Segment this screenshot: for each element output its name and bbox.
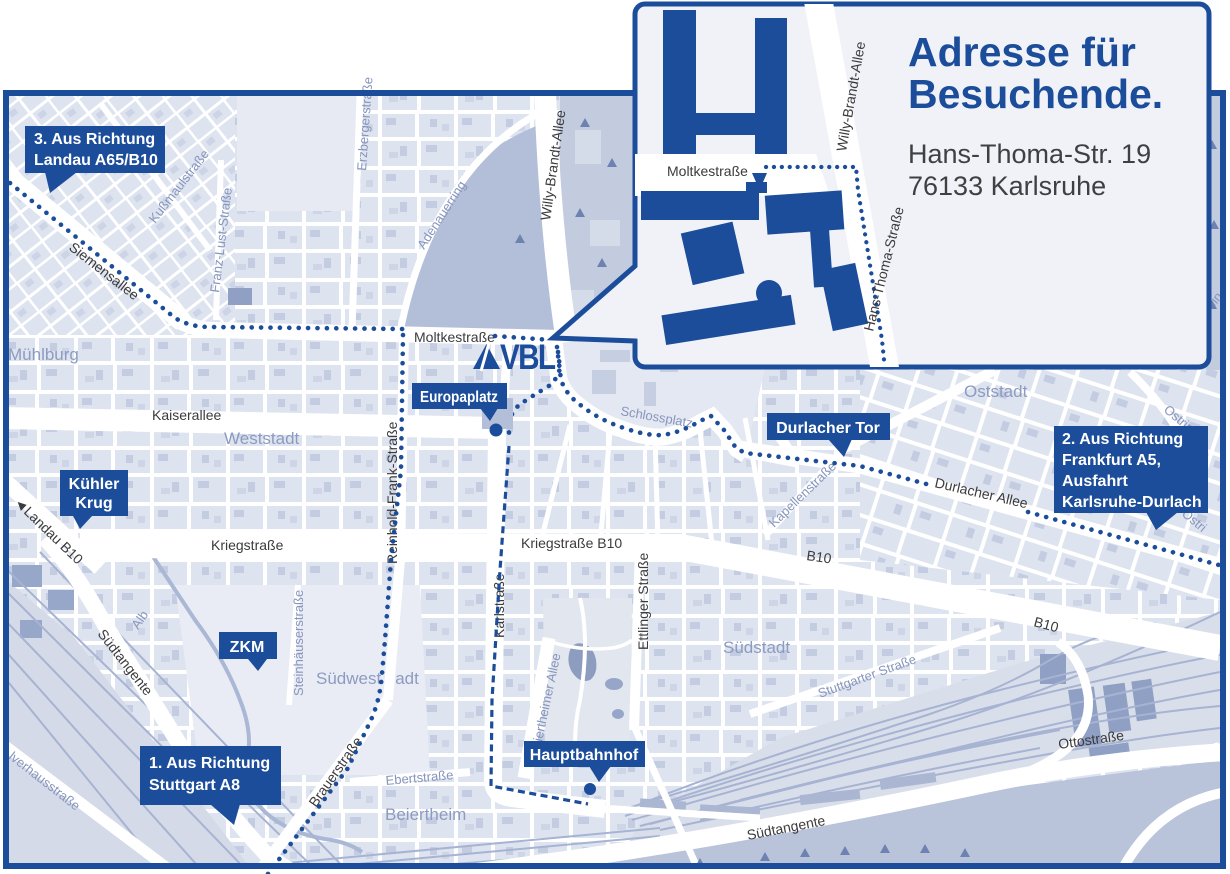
svg-text:Kriegstraße: Kriegstraße [211,537,284,553]
svg-text:Mühlburg: Mühlburg [8,345,79,364]
svg-text:76133 Karlsruhe: 76133 Karlsruhe [908,171,1106,201]
svg-text:Ettlinger Straße: Ettlinger Straße [635,553,651,650]
svg-text:1. Aus Richtung: 1. Aus Richtung [149,755,270,772]
svg-text:Oststadt: Oststadt [964,382,1028,401]
svg-text:3. Aus Richtung: 3. Aus Richtung [34,131,155,148]
svg-text:VBL: VBL [500,338,555,377]
svg-text:Europaplatz: Europaplatz [420,389,498,406]
svg-text:Kriegstraße B10: Kriegstraße B10 [521,535,622,551]
svg-text:Südstadt: Südstadt [723,638,790,657]
svg-text:Karlsruhe-Durlach: Karlsruhe-Durlach [1062,494,1202,511]
svg-text:2. Aus Richtung: 2. Aus Richtung [1062,431,1183,448]
svg-text:Kaiserallee: Kaiserallee [152,407,221,423]
svg-text:Durlacher Tor: Durlacher Tor [776,420,880,437]
svg-text:Moltkestraße: Moltkestraße [414,329,495,345]
svg-text:Stuttgart A8: Stuttgart A8 [149,777,240,794]
svg-text:Beiertheim: Beiertheim [385,805,466,824]
svg-text:Ausfahrt: Ausfahrt [1062,473,1128,490]
svg-text:Karlstraße: Karlstraße [491,573,507,638]
svg-text:Weststadt: Weststadt [224,429,300,448]
svg-text:Landau A65/B10: Landau A65/B10 [34,152,158,169]
svg-text:Kühler: Kühler [69,476,120,493]
svg-text:Frankfurt A5,: Frankfurt A5, [1062,452,1161,469]
svg-text:Besuchende.: Besuchende. [908,71,1163,117]
svg-text:Hauptbahnhof: Hauptbahnhof [530,747,639,764]
svg-text:Krug: Krug [75,495,112,512]
svg-text:Steinhäuserstraße: Steinhäuserstraße [291,590,306,696]
svg-text:Südwestadt: Südwestadt [316,669,419,688]
svg-text:Hans-Thoma-Str. 19: Hans-Thoma-Str. 19 [908,139,1151,169]
svg-text:Adresse für: Adresse für [908,29,1136,75]
svg-text:ZKM: ZKM [230,639,265,656]
svg-text:Moltkestraße: Moltkestraße [667,163,748,179]
